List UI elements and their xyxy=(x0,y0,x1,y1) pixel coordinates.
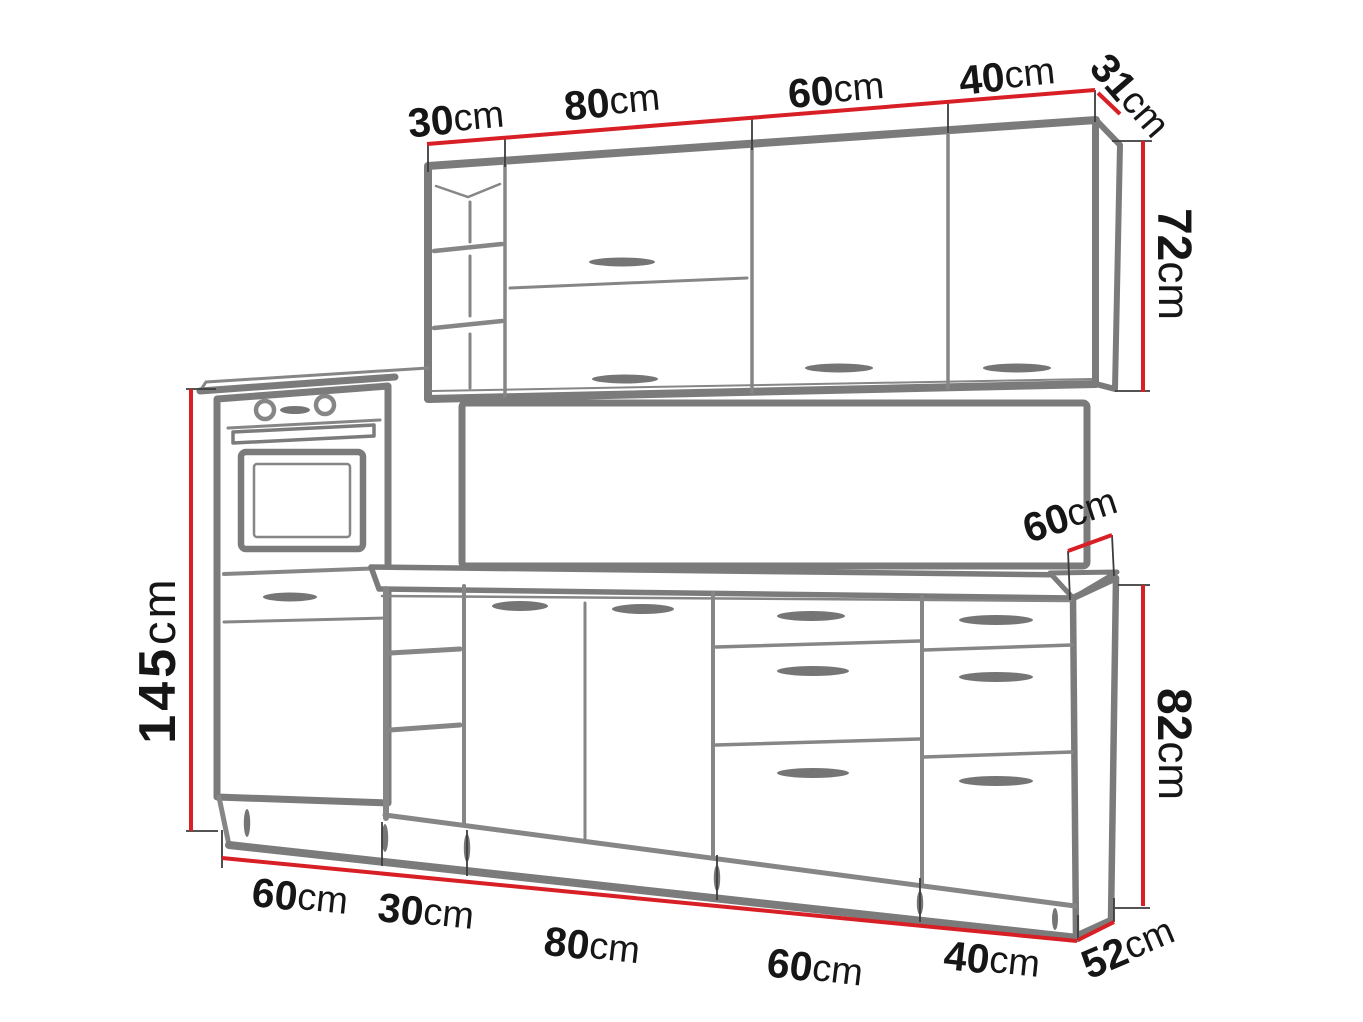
base-40-drawer-line-2 xyxy=(924,752,1072,757)
dim-line-base-bottom xyxy=(222,858,1077,941)
label-base-60cm-2: 60cm xyxy=(764,939,865,996)
oven-display xyxy=(280,406,310,414)
label-wall-height-72cm: 72cm xyxy=(1148,208,1201,320)
label-wall-80cm: 80cm xyxy=(562,74,662,129)
wall-cabinets-front xyxy=(428,120,1096,399)
label-base-40cm: 40cm xyxy=(942,932,1043,988)
base-60-drawer-handle-1 xyxy=(777,611,845,621)
base-side-panel xyxy=(1073,578,1116,936)
base-80-right-door-handle xyxy=(612,604,674,614)
wall-40-door-handle xyxy=(983,364,1051,373)
diagram-canvas: 30cm 80cm 60cm 40cm 31cm 72cm 145cm 60cm… xyxy=(0,0,1363,1022)
plinth-mark xyxy=(244,809,250,837)
wall-80-lower-door-handle xyxy=(592,375,658,384)
base-60-drawer-line-1 xyxy=(716,641,920,647)
oven-window xyxy=(241,452,363,549)
base-60-drawer-handle-3 xyxy=(777,768,849,778)
base-boxes-bottom-edge xyxy=(385,815,1075,906)
base-shelf-2 xyxy=(390,725,460,730)
plinth-mark xyxy=(1052,908,1058,930)
label-base-60cm: 60cm xyxy=(250,869,351,925)
base-40-drawer-handle-3 xyxy=(959,776,1033,786)
base-40-drawer-handle-1 xyxy=(959,615,1033,625)
kitchen-dimension-diagram: 30cm 80cm 60cm 40cm 31cm 72cm 145cm 60cm… xyxy=(0,0,1363,1022)
wall-60-door-handle xyxy=(805,364,873,373)
label-tall-height-145cm: 145cm xyxy=(129,576,187,743)
wall-80-upper-door-handle xyxy=(589,258,655,267)
tall-plinth-edge xyxy=(219,797,229,845)
tall-oven-cabinet xyxy=(200,368,428,845)
base-shelf-1 xyxy=(390,649,460,653)
base-80-left-door-handle xyxy=(492,601,548,611)
base-60-drawer-line-2 xyxy=(716,739,920,745)
backsplash-panel xyxy=(462,403,1087,566)
base-40-drawer-handle-2 xyxy=(959,672,1033,682)
wall-cabinet-row xyxy=(428,120,1120,399)
label-base-30cm: 30cm xyxy=(376,884,477,940)
label-base-80cm: 80cm xyxy=(542,918,643,975)
tall-drawer-handle xyxy=(263,593,317,602)
base-40-drawer-line-1 xyxy=(924,645,1072,650)
wall-cabinets-side-panel xyxy=(1096,120,1120,389)
countertop xyxy=(371,567,1073,598)
base-60-drawer-handle-2 xyxy=(777,666,849,676)
label-base-height-82cm: 82cm xyxy=(1148,688,1201,800)
